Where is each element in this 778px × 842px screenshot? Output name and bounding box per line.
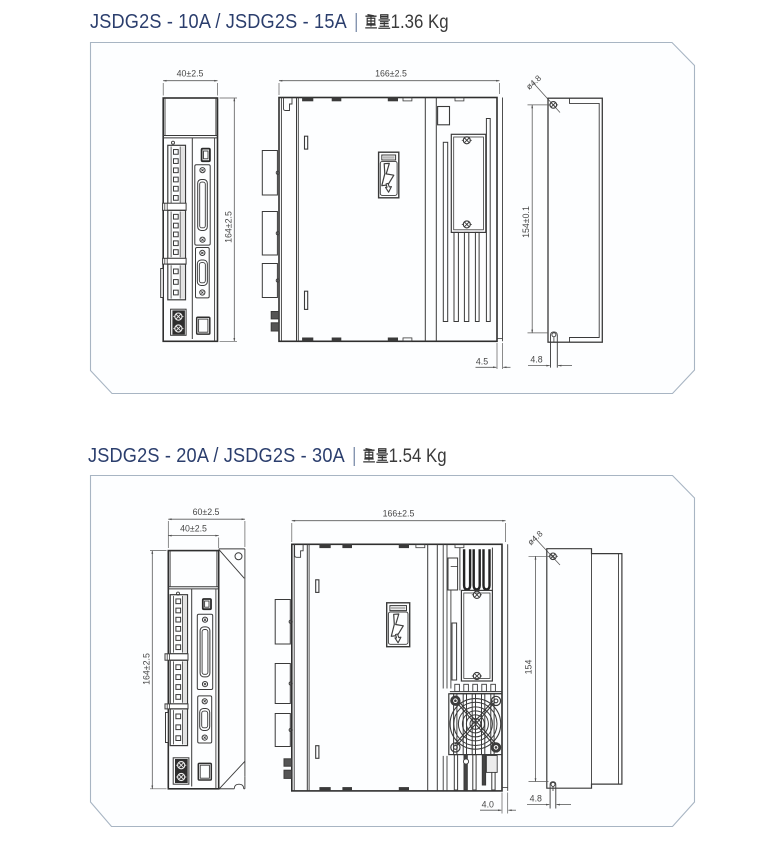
svg-text:60±2.5: 60±2.5	[193, 507, 220, 517]
svg-text:166±2.5: 166±2.5	[375, 69, 407, 79]
svg-text:154: 154	[524, 660, 534, 675]
svg-text:166±2.5: 166±2.5	[383, 509, 415, 519]
svg-text:4.8: 4.8	[530, 354, 542, 364]
svg-text:164±2.5: 164±2.5	[141, 653, 151, 685]
svg-text:4.0: 4.0	[482, 799, 494, 809]
svg-text:164±2.5: 164±2.5	[224, 211, 234, 243]
svg-text:4.5: 4.5	[476, 356, 488, 366]
svg-text:154±0.1: 154±0.1	[521, 206, 531, 238]
svg-text:40±2.5: 40±2.5	[177, 69, 204, 79]
svg-text:40±2.5: 40±2.5	[180, 524, 207, 534]
svg-text:4.8: 4.8	[530, 794, 542, 804]
